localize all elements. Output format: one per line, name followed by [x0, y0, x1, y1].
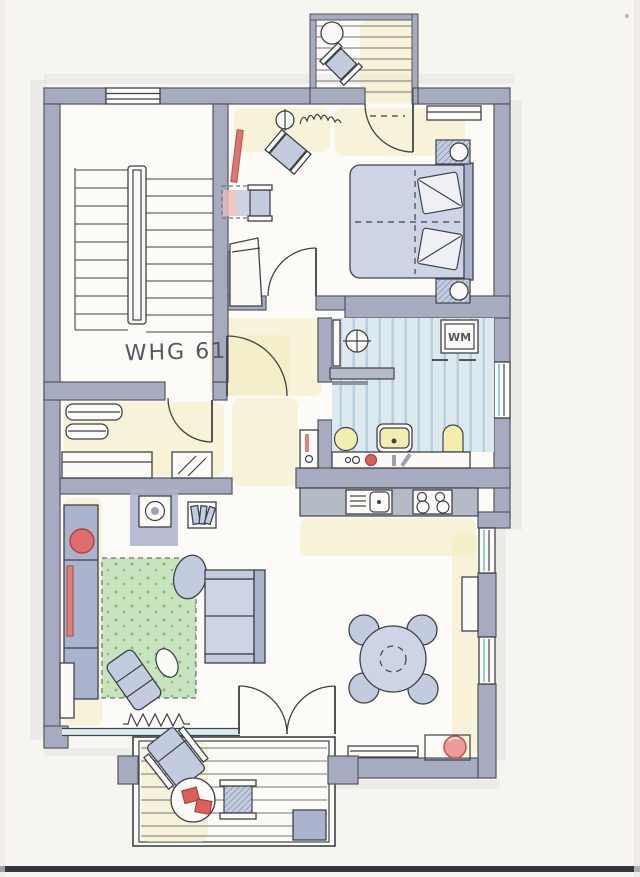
- tv-screen: [67, 566, 73, 636]
- nightstand-lamp-2: [450, 282, 468, 300]
- wall-shelf: [462, 577, 478, 631]
- washing-machine-label: WM: [448, 331, 471, 344]
- pillow-top: [417, 172, 463, 214]
- stove-hob: [413, 490, 452, 514]
- washing-machine: WM: [441, 320, 478, 353]
- terrace-side-table: [293, 810, 326, 840]
- balcony-wall-top: [310, 14, 418, 20]
- nightstand-lamp: [450, 143, 468, 161]
- scan-bottom-bar: [0, 866, 640, 872]
- bathroom-window: [494, 362, 510, 418]
- double-bed: [350, 163, 473, 280]
- scan-right-edge: [634, 0, 640, 877]
- terrace-armchair: [220, 780, 256, 819]
- scan-speck: [625, 14, 629, 18]
- terrace-round-table: [171, 778, 215, 822]
- magazine-rack: [188, 502, 216, 528]
- red-bowl: [70, 529, 94, 553]
- balcony-round-table: [321, 22, 343, 44]
- scanned-floor-plan-page: WHG 61: [0, 0, 640, 877]
- dining-window-upper: [479, 528, 495, 573]
- lowboard: [348, 746, 418, 757]
- stair-center-divider: [128, 166, 146, 324]
- kitchen-sink: [346, 490, 392, 514]
- mirror: [172, 452, 212, 478]
- living-glass-front: [62, 728, 240, 736]
- hall-shelf: [300, 430, 318, 468]
- round-washbasin: [335, 428, 358, 451]
- bath-shelf: [330, 368, 394, 379]
- nightstand-top: [436, 140, 470, 164]
- sideboard: [62, 452, 152, 478]
- sofa-armrest-top: [205, 570, 254, 579]
- floor-plan-drawing: WHG 61: [0, 0, 640, 877]
- bath-wall-rail: [333, 320, 340, 366]
- dining-window-lower: [479, 637, 495, 684]
- dining-table: [360, 626, 426, 692]
- sofa-armrest-bottom: [205, 654, 254, 663]
- wood-stove: [130, 489, 178, 546]
- pillow-bottom: [417, 228, 463, 270]
- scan-left-edge: [0, 0, 5, 877]
- nightstand-bottom: [436, 279, 470, 303]
- toilet: [443, 425, 463, 452]
- wardrobe-top: [427, 106, 481, 120]
- bath-shelf-edge: [332, 381, 368, 385]
- square-washbasin: [377, 424, 412, 452]
- red-plant-ball: [444, 736, 466, 758]
- bathroom: WM: [330, 318, 494, 468]
- desk-chair: [248, 185, 272, 221]
- red-soap-dish: [366, 455, 377, 466]
- sofa-backrest: [254, 570, 265, 663]
- terrace-pier-right: [328, 756, 358, 784]
- bed-headboard: [464, 163, 473, 280]
- apartment-label: WHG 61: [125, 339, 228, 367]
- radiator-panel: [60, 663, 74, 718]
- sofa: [205, 570, 265, 663]
- terrace-pier-left: [118, 756, 138, 784]
- vanity-counter: [332, 452, 470, 468]
- desk: [222, 186, 250, 218]
- wardrobe-left: [230, 238, 262, 306]
- terrace: [118, 721, 358, 846]
- stairwell-entrance-door: [106, 88, 160, 104]
